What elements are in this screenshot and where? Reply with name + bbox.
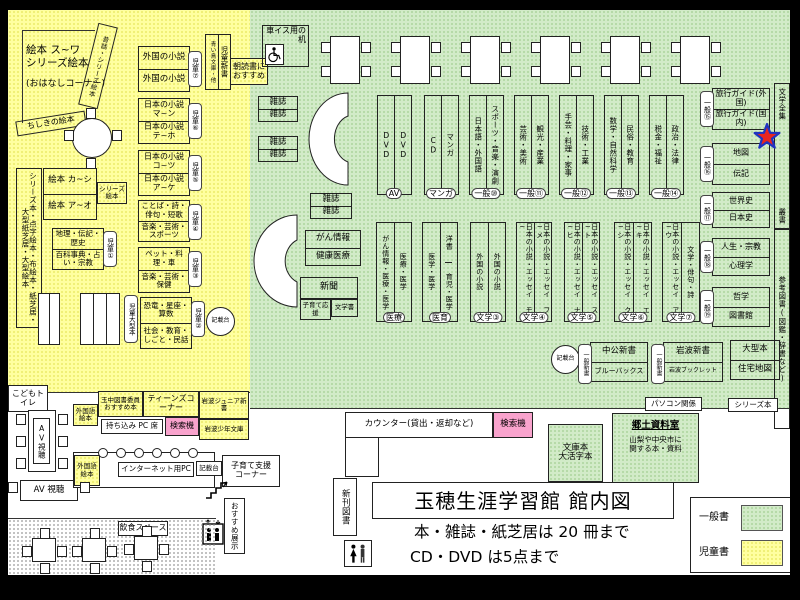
shelf-label: 大活字本 — [558, 453, 592, 462]
shelf-label: 児童新書 — [221, 46, 229, 78]
curved-shelf — [251, 212, 299, 310]
foreign-fiction-children-shelf: 外国の小説 外国の小説 — [138, 46, 190, 92]
shelf-tag: 一般⑮ — [700, 91, 714, 127]
shelf-label: 絵本 カ~シ — [44, 169, 96, 194]
shelf-label: 青い鳥文庫・他 — [209, 41, 215, 83]
chair — [159, 544, 169, 555]
shelf-tag: 一般⑬ — [606, 188, 636, 199]
cancer-info-shelf: がん情報 健康医療 — [305, 230, 361, 266]
chair — [72, 546, 82, 557]
children-4-tag: 児童④ — [188, 204, 202, 240]
chair — [361, 66, 371, 77]
chair — [90, 563, 100, 574]
shelf-column: 外国の小説 — [471, 223, 488, 321]
shelf-label: DVD — [382, 131, 390, 160]
shelf-label: ペット・料理・車 — [139, 248, 189, 270]
literature-anthology-shelf: 文学全集 叢書 — [774, 83, 790, 229]
search-terminal: 検索機 — [493, 412, 533, 438]
shelf-unit: 医学・医学洋書育児・医学 — [422, 222, 458, 322]
shelf-tag: 文学④ — [519, 312, 548, 323]
chair — [531, 66, 541, 77]
shelf-column: がん情報・医療・医学 — [377, 223, 394, 321]
shelf-label: 日本の小説・エッセイ ア~ウ — [665, 223, 679, 321]
av-viewing-booth: AV 視聴 — [20, 480, 78, 501]
shelf-label: 叢書 — [778, 208, 786, 224]
teens-corner: ティーンズコーナー — [143, 391, 199, 417]
shelf-label: 日本の小説・エッセイ ス~ト — [584, 223, 598, 321]
chair — [321, 42, 331, 53]
shelf-label: 百科事典・占い・宗教 — [53, 249, 103, 270]
shelf-label: 日本の小説・エッセイ フ~メ — [536, 223, 550, 321]
shelf-label: 雑誌 — [259, 137, 297, 149]
literature-books-shelf: 文学書 — [331, 299, 358, 317]
shelf-label: 日本の小説 ア~ケ — [139, 173, 189, 196]
shelf-label: 観光・産業 — [536, 125, 544, 165]
dinosaur-science-shelf: 恐竜・星座・算数 社会・教育・しごと・民話 — [140, 297, 192, 349]
pc-monitor — [98, 448, 108, 458]
shelf-label: 雑誌 — [311, 194, 351, 206]
shelf-column: 日本の小説・エッセイ モ~ — [517, 223, 534, 321]
reading-table — [610, 36, 640, 84]
chair — [711, 66, 721, 77]
shelf-label: がん情報・医療・医学 — [382, 235, 389, 310]
shelf-label: 日本の小説・エッセイ ナ~ヒ — [566, 223, 580, 321]
shelf-tag: 医育 — [429, 312, 451, 323]
shelf-label: 日本の小説 コ~ツ — [139, 151, 189, 173]
iwanami-shonen-shelf: 岩波少年文庫 — [199, 419, 249, 440]
shelf-label: 新刊図書 — [341, 489, 350, 525]
legend-children-swatch — [741, 540, 783, 566]
shelf-label: 哲学 — [713, 288, 769, 307]
chair — [321, 66, 331, 77]
shelf-label: スポーツ・音楽・演劇 — [491, 105, 499, 185]
shelf-tag: 一般⑭ — [651, 188, 681, 199]
chair — [142, 561, 152, 572]
shelf-label: 外国の小説 — [476, 253, 483, 291]
shelf-label: 住宅地図 — [731, 360, 779, 380]
shelf-column: DVD — [378, 96, 394, 194]
category-shelf: 人生・宗教心理学 — [712, 238, 770, 276]
shelf-column: 民俗・教育 — [621, 96, 638, 194]
large-books-shelf: 大型本 住宅地図 — [730, 340, 780, 380]
shelf-label: 音楽・芸術・スポーツ — [139, 221, 189, 242]
chair — [16, 436, 26, 447]
wheelchair-desk: 車イス用の机 — [262, 25, 309, 67]
category-shelf: 哲学図書館 — [712, 287, 770, 327]
shelf-label: 健康医療 — [306, 248, 360, 266]
language-poetry-shelf: ことば・詩・俳句・短歌 音楽・芸術・スポーツ — [138, 200, 190, 242]
writing-stand: 記載台 — [196, 461, 222, 476]
newspaper-shelf: 新聞 — [300, 277, 358, 299]
legend-row: 児童書 — [699, 540, 783, 566]
shelf-column: 芸術・美術 — [515, 96, 531, 194]
shelf-label: 岩波新書 — [664, 343, 722, 362]
legend-general-swatch — [741, 505, 783, 531]
shelf-column: 外国の小説 — [488, 223, 506, 321]
wheelchair-icon — [265, 44, 284, 65]
chair — [461, 66, 471, 77]
shelf-label: 雑誌 — [259, 97, 297, 109]
shelf-label: 医療・医学 — [399, 253, 406, 291]
dining-table — [32, 538, 56, 562]
shelf-column: 技術・工業 — [576, 96, 593, 194]
shelf-label: 日本の小説 マ~ン — [139, 99, 189, 121]
children-large-books-tag: 児童大型本 — [124, 295, 138, 343]
childcare-support-shelf: 子育て応援 — [300, 299, 331, 320]
legend-children-label: 児童書 — [699, 547, 729, 558]
shelf-tag: 一般⑰ — [700, 195, 714, 225]
paperback-large-print-shelf: 文庫本 大活字本 — [548, 424, 603, 482]
chair — [107, 546, 117, 557]
children-paperback-shelf: 青い鳥文庫・他 児童新書 — [205, 34, 231, 90]
curved-shelf — [306, 90, 350, 188]
shelf-label: 雑誌 — [311, 206, 351, 219]
reading-table — [330, 36, 360, 84]
magazine-shelf: 雑誌 雑誌 — [258, 136, 298, 162]
chair — [671, 42, 681, 53]
shelf-label: 人生・宗教 — [713, 239, 769, 257]
pc-monitor — [188, 448, 198, 458]
shelf-label: 外国の小説 — [493, 253, 500, 291]
shelf-column: 医学・医学 — [423, 223, 440, 321]
chair — [461, 42, 471, 53]
shelf-label: 心理学 — [713, 257, 769, 276]
shelf-label: 音楽・芸術・保健 — [139, 270, 189, 293]
shelf-column: 税金・福祉 — [650, 96, 666, 194]
shelf-tag: 医療 — [383, 312, 405, 323]
shelf-label: DVD — [399, 131, 407, 160]
new-arrivals-shelf: 新刊図書 — [333, 478, 357, 536]
wheelchair-desk-label: 車イス用の机 — [263, 26, 308, 46]
shelf-column: 医療・医学 — [394, 223, 412, 321]
shelf-column: 日本語・外国語 — [470, 96, 486, 194]
shelf-label: 医学・医学 — [428, 253, 435, 291]
series-books-tag: シリーズ本 — [728, 398, 778, 412]
category-shelf: 世界史日本史 — [712, 192, 770, 228]
chair — [16, 414, 26, 425]
shelf-label: 洋書 — [445, 235, 452, 250]
legend-row: 一般書 — [699, 505, 783, 531]
chair — [501, 66, 511, 77]
local-history-room: 郷土資料室 山梨や中央市に 関する本・資料 — [612, 413, 699, 483]
japanese-fiction-children-shelf: 日本の小説 コ~ツ 日本の小説 ア~ケ — [138, 150, 190, 196]
empty-shelf — [80, 293, 120, 345]
cd-dvd-limit-note: CD・DVD は5点まで — [410, 548, 559, 567]
shelf-label: 育児・医学 — [445, 273, 452, 311]
shelf-column: 日本の小説・エッセイ フ~メ — [534, 223, 552, 321]
room-title: 郷土資料室 — [613, 421, 698, 431]
shelf-unit: 日本の小説・エッセイ モ~日本の小説・エッセイ フ~メ — [516, 222, 552, 322]
foreign-picturebook-shelf: 外国語絵本 — [73, 404, 98, 426]
chair — [8, 482, 18, 493]
stairs-icon — [204, 478, 230, 500]
empty-shelf — [38, 293, 60, 345]
pc-monitor — [152, 448, 162, 458]
recommended-display-shelf: おすすめ展示 — [224, 498, 245, 554]
shelf-column: 数学・自然科学 — [605, 96, 621, 194]
chair — [431, 66, 441, 77]
shelf-label: 中公新書 — [591, 343, 647, 362]
shelf-tag: AV — [386, 188, 402, 199]
room-desc: 関する本・資料 — [613, 445, 698, 453]
counter-wing — [345, 437, 379, 477]
children-5-tag: 児童⑤ — [188, 155, 202, 191]
shelf-label: 日本の小説・エッセイ モ~ — [518, 223, 532, 321]
shelf-column: 日本の小説・エッセイ ナ~ヒ — [565, 223, 582, 321]
shelf-unit: 日本の小説・エッセイ ア~ウ文学・俳句・詩 — [662, 222, 700, 322]
shelf-label: 外国の小説 — [139, 69, 189, 92]
pets-cooking-shelf: ペット・料理・車 音楽・芸術・保健 — [138, 247, 190, 293]
shelf-unit: 日本の小説・エッセイ ナ~ヒ日本の小説・エッセイ ス~ト — [564, 222, 600, 322]
magazine-shelf: 雑誌 雑誌 — [310, 193, 352, 219]
shelf-tag: 一般⑩ — [471, 188, 500, 199]
map-title: 玉穂生涯学習館 館内図 — [372, 482, 674, 519]
shelf-label: 文学全集 — [778, 88, 786, 120]
series-picturebook-tag: シリーズ絵本 — [97, 182, 127, 204]
shelf-label: 日本の小説・エッセイ エ~キ — [635, 223, 649, 321]
kids-toilet: こどもトイレ — [8, 385, 48, 412]
shelf-tag: 文学⑥ — [618, 312, 647, 323]
shelf-unit: 日本の小説・エッセイ ク~シ日本の小説・エッセイ エ~キ — [614, 222, 652, 322]
shelf-column: 日本の小説・エッセイ ク~シ — [615, 223, 633, 321]
shelf-column: 日本の小説・エッセイ ア~ウ — [663, 223, 681, 321]
shelf-unit: 税金・福祉政治・法律 — [649, 95, 684, 195]
chair — [58, 458, 68, 469]
chair — [571, 42, 581, 53]
shelf-tag: 一般⑯ — [700, 146, 714, 182]
av-viewing-label: AV視聴 — [33, 418, 50, 464]
chair — [431, 42, 441, 53]
shelf-column: 日本の小説・エッセイ エ~キ — [633, 223, 652, 321]
iwanami-shinsho-shelf: 岩波新書 岩波ブックレット — [663, 342, 723, 382]
dining-table — [82, 538, 106, 562]
iwanami-junior-shelf: 岩波ジュニア新書 — [199, 391, 249, 419]
children-3-tag: 児童③ — [188, 251, 202, 287]
shelf-label: 政治・法律 — [671, 125, 679, 165]
shelf-label: 岩波ブックレット — [664, 362, 722, 382]
shelf-label: 日本史 — [713, 210, 769, 228]
shelf-label: 日本の小説 テ~ホ — [139, 121, 189, 144]
chair — [671, 66, 681, 77]
shelf-tag: 文学⑤ — [567, 312, 596, 323]
shelf-column: マンガ — [441, 96, 458, 194]
shelf-label: 技術・工業 — [581, 125, 589, 165]
reading-table — [470, 36, 500, 84]
chair — [124, 544, 134, 555]
school-committee-picks-shelf: 玉中図書委員おすすめ本 — [98, 391, 143, 417]
shelf-tag: 文学③ — [473, 312, 502, 323]
children-1-tag: 児童① — [103, 231, 117, 267]
shelf-label: ことば・詩・俳句・短歌 — [139, 201, 189, 221]
shelf-label: 雑誌 — [259, 149, 297, 162]
shelf-column: スポーツ・音楽・演劇 — [486, 96, 503, 194]
lending-limit-note: 本・雑誌・紙芝居は 20 冊まで — [414, 523, 630, 542]
shelf-label: 図書館 — [713, 307, 769, 327]
shelf-label: 大型本 — [731, 341, 779, 360]
chair — [64, 130, 74, 141]
shelf-column: 青い鳥文庫・他 — [206, 35, 218, 89]
shelf-label: 伝記 — [713, 164, 769, 185]
reading-table — [680, 36, 710, 84]
shelf-label: 旅行ガイド(外国) — [713, 89, 769, 109]
shelf-label: 世界史 — [713, 193, 769, 210]
chair — [16, 458, 26, 469]
childcare-support-corner: 子育て支援 コーナー — [222, 455, 280, 487]
shelf-unit: がん情報・医療・医学医療・医学 — [376, 222, 412, 322]
chair — [601, 66, 611, 77]
dining-table — [134, 536, 158, 560]
chair — [571, 66, 581, 77]
shelf-column: DVD — [394, 96, 411, 194]
chair — [391, 66, 401, 77]
legend: 一般書 児童書 — [690, 497, 790, 573]
pc-related-tag: パソコン関係 — [645, 397, 702, 411]
shelf-label: 手芸・料理・家事 — [564, 113, 572, 177]
shelf-unit: 芸術・美術観光・産業 — [514, 95, 549, 195]
shelf-tag: 一般⑪ — [516, 188, 546, 199]
toilet-icon — [344, 540, 372, 567]
chair — [531, 42, 541, 53]
shelf-tag: 一般⑫ — [561, 188, 591, 199]
search-terminal: 検索機 — [165, 417, 199, 436]
shelf-label: がん情報 — [306, 231, 360, 248]
shelf-unit: 手芸・料理・家事技術・工業 — [559, 95, 594, 195]
children-7-tag: 児童⑦ — [188, 51, 202, 87]
chair — [112, 130, 122, 141]
shelf-column: 洋書育児・医学 — [440, 223, 458, 321]
shelf-unit: DVDDVD — [377, 95, 412, 195]
pc-monitor — [116, 448, 126, 458]
writing-stand: 記載台 — [206, 307, 235, 336]
internet-pc-label: インターネット用PC — [118, 462, 194, 477]
chair — [80, 482, 90, 493]
chair — [601, 42, 611, 53]
writing-stand: 記載台 — [551, 345, 580, 374]
chair — [641, 42, 651, 53]
shelf-label: ブルーバックス — [591, 362, 647, 382]
picturebook-shelf: 絵本 カ~シ 絵本 ア~オ — [43, 168, 97, 220]
byod-pc-seats: 持ち込み PC 席 — [101, 419, 163, 434]
chuko-shinsho-shelf: 中公新書 ブルーバックス — [590, 342, 648, 382]
shelf-label: 日本語・外国語 — [474, 117, 482, 173]
reading-table — [540, 36, 570, 84]
shelf-column: 文学・俳句・詩 — [681, 223, 700, 321]
shelf-label: 日本の小説・エッセイ ク~シ — [617, 223, 631, 321]
shelf-label: 雑誌 — [259, 109, 297, 122]
shelf-label: 民俗・教育 — [626, 125, 634, 165]
chair — [86, 108, 96, 119]
chair — [361, 42, 371, 53]
shelf-column: 手芸・料理・家事 — [560, 96, 576, 194]
chair — [40, 563, 50, 574]
counter: カウンター(貸出・返却など) — [345, 412, 493, 438]
shelf-column: 日本の小説・エッセイ ス~ト — [582, 223, 600, 321]
magazine-shelf: 雑誌 雑誌 — [258, 96, 298, 122]
round-table — [72, 118, 112, 158]
shelf-tag: 一般⑲ — [700, 290, 714, 324]
shelf-label: マンガ — [446, 133, 454, 157]
shelf-label: 芸術・美術 — [519, 125, 527, 165]
shelf-label: 税金・福祉 — [654, 125, 662, 165]
chair — [90, 528, 100, 539]
legend-general-label: 一般書 — [699, 512, 729, 523]
chair — [40, 528, 50, 539]
shelf-label: シリーズ本・点字絵本・布絵本・紙芝居・大型紙芝居・大型絵本 — [22, 169, 37, 327]
star-marker — [752, 122, 782, 152]
general-paperback-tag: 一般新書 — [651, 344, 665, 384]
chair — [58, 436, 68, 447]
shelf-unit: 数学・自然科学民俗・教育 — [604, 95, 639, 195]
shelf-label: 社会・教育・しごと・民話 — [141, 323, 191, 349]
shelf-label: 地理・伝記・歴史 — [53, 229, 103, 249]
reading-table — [400, 36, 430, 84]
shelf-tag: 一般⑱ — [700, 241, 714, 273]
chair — [58, 414, 68, 425]
chair — [391, 42, 401, 53]
shelf-unit: 外国の小説外国の小説 — [470, 222, 506, 322]
library-floor-map: 絵本 ス~ワ シリーズ絵本 (おはなしコーナー) 昔話・シリーズ絵本 ちしきの絵… — [8, 10, 790, 575]
chair — [641, 66, 651, 77]
chair — [142, 526, 152, 537]
chair — [711, 42, 721, 53]
general-paperback-tag: 一般新書 — [578, 344, 592, 384]
chair — [501, 42, 511, 53]
shelf-unit: 日本語・外国語スポーツ・音楽・演劇 — [469, 95, 504, 195]
shelf-column: 児童新書 — [218, 35, 231, 89]
shelf-label: 恐竜・星座・算数 — [141, 298, 191, 323]
geography-biography-shelf: 地理・伝記・歴史 百科事典・占い・宗教 — [52, 228, 104, 270]
shelf-column: CD — [425, 96, 441, 194]
chair — [57, 546, 67, 557]
shelf-label: 絵本 ア~オ — [44, 194, 96, 220]
pc-monitor — [170, 448, 180, 458]
children-6-tag: 児童⑥ — [188, 103, 202, 139]
shelf-unit: CDマンガ — [424, 95, 459, 195]
children-2-tag: 児童② — [191, 301, 205, 337]
chair — [22, 546, 32, 557]
shelf-label: 外国の小説 — [139, 47, 189, 69]
shelf-column: 観光・産業 — [531, 96, 548, 194]
shelf-column: 政治・法律 — [666, 96, 683, 194]
pc-monitor — [134, 448, 144, 458]
shelf-label: 文学・俳句・詩 — [687, 246, 694, 299]
japanese-fiction-children-shelf: 日本の小説 マ~ン 日本の小説 テ~ホ — [138, 98, 190, 144]
shelf-tag: 文学⑦ — [666, 312, 695, 323]
shelf-tag: マンガ — [426, 188, 456, 199]
shelf-label: CD — [429, 136, 437, 155]
shelf-label: 数学・自然科学 — [609, 117, 617, 173]
